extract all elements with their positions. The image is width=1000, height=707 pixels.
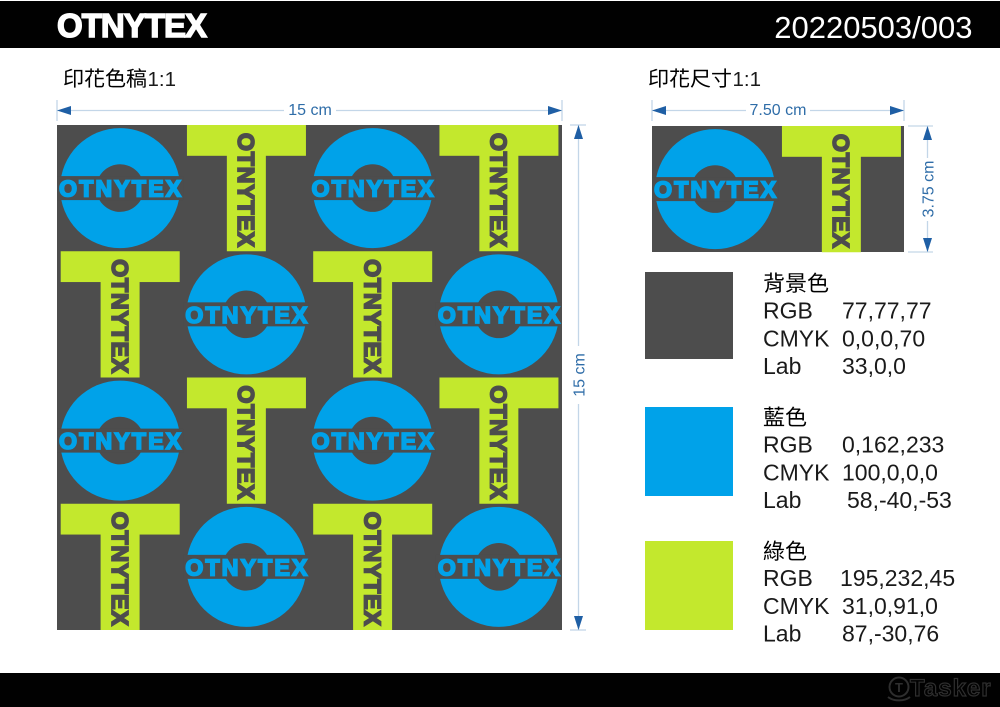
svg-text:Tasker: Tasker: [910, 675, 992, 702]
svg-text:31,0,91,0: 31,0,91,0: [842, 593, 938, 619]
svg-text:T: T: [895, 680, 903, 695]
svg-text:CMYK: CMYK: [763, 593, 830, 619]
svg-text:77,77,77: 77,77,77: [842, 298, 932, 324]
svg-text:0,0,0,70: 0,0,0,70: [842, 326, 925, 352]
svg-text:1:1: 1:1: [733, 68, 762, 91]
svg-text:15 cm: 15 cm: [572, 353, 589, 397]
svg-text:58,-40,-53: 58,-40,-53: [847, 487, 952, 513]
svg-text:CMYK: CMYK: [763, 460, 830, 486]
svg-text:Lab: Lab: [763, 621, 801, 647]
svg-text:RGB: RGB: [763, 565, 813, 591]
svg-text:100,0,0,0: 100,0,0,0: [842, 460, 938, 486]
svg-text:0,162,233: 0,162,233: [842, 432, 944, 458]
svg-text:3.75 cm: 3.75 cm: [921, 161, 938, 218]
svg-text:15 cm: 15 cm: [288, 102, 332, 119]
svg-text:Lab: Lab: [763, 487, 801, 513]
svg-text:CMYK: CMYK: [763, 326, 830, 352]
svg-text:7.50 cm: 7.50 cm: [750, 102, 807, 119]
svg-text:33,0,0: 33,0,0: [842, 353, 906, 379]
svg-text:87,-30,76: 87,-30,76: [842, 621, 939, 647]
svg-text:Lab: Lab: [763, 353, 801, 379]
svg-text:OTNYTEX: OTNYTEX: [57, 7, 207, 44]
svg-text:20220503/003: 20220503/003: [774, 10, 972, 45]
svg-text:RGB: RGB: [763, 432, 813, 458]
svg-text:1:1: 1:1: [148, 68, 177, 91]
svg-text:RGB: RGB: [763, 298, 813, 324]
svg-text:195,232,45: 195,232,45: [840, 565, 955, 591]
